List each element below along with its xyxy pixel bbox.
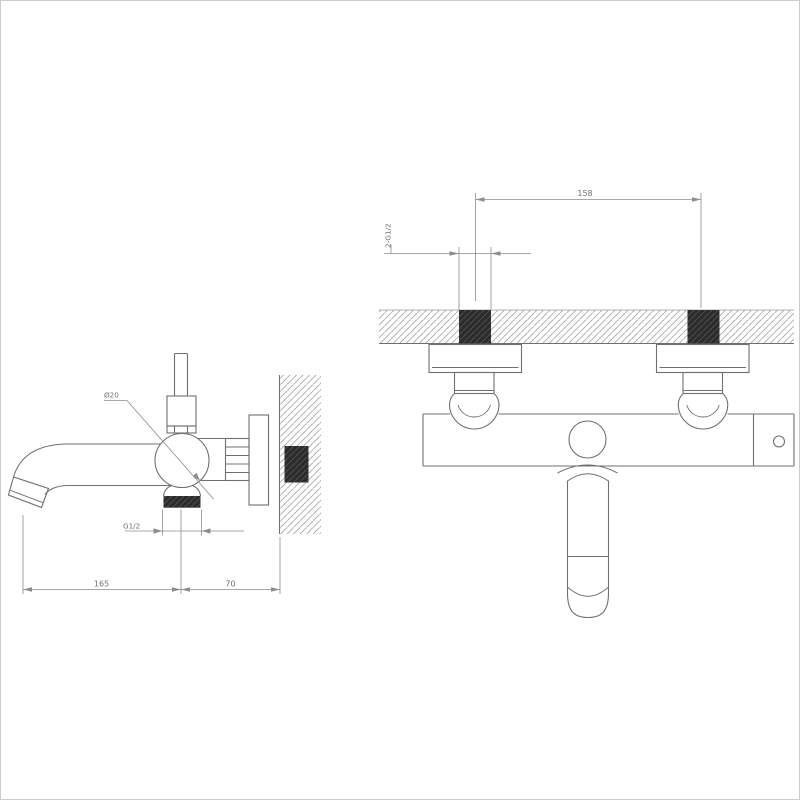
side-dimensions (23, 401, 280, 595)
label-outlet-thread: G1/2 (123, 522, 140, 531)
label-dim-158: 158 (577, 189, 592, 198)
side-spout (9, 444, 171, 508)
side-bottom-outlet (164, 486, 201, 508)
side-outlet-thread-block (164, 496, 201, 508)
side-view: Ø20 G1/2 165 70 (9, 354, 322, 595)
front-left-supply-block (459, 310, 491, 344)
front-right-union (657, 345, 750, 430)
side-wall-anchor-block (285, 446, 309, 483)
side-escutcheon (249, 415, 269, 505)
front-left-escutcheon (429, 345, 522, 373)
front-view: 158 2-G1/2 (379, 189, 794, 618)
front-left-union (429, 345, 522, 430)
technical-drawing-page: Ø20 G1/2 165 70 (0, 0, 800, 800)
front-lever-handle (558, 465, 618, 618)
label-supply-thread: 2-G1/2 (384, 223, 393, 248)
front-wall-section (379, 310, 794, 344)
label-dim-70: 70 (225, 580, 235, 589)
side-wall-connector (198, 415, 269, 505)
label-spout-diameter: Ø20 (104, 391, 119, 400)
front-diverter-knob (569, 421, 606, 458)
side-lever-handle (167, 354, 196, 434)
label-dim-165: 165 (94, 580, 109, 589)
side-wall-section (280, 375, 322, 534)
front-dimensions (384, 193, 701, 310)
front-right-supply-block (688, 310, 720, 344)
front-side-button (774, 436, 785, 447)
front-right-escutcheon (657, 345, 750, 373)
front-mixer-body (423, 414, 794, 466)
drawing-svg: Ø20 G1/2 165 70 (1, 1, 799, 799)
